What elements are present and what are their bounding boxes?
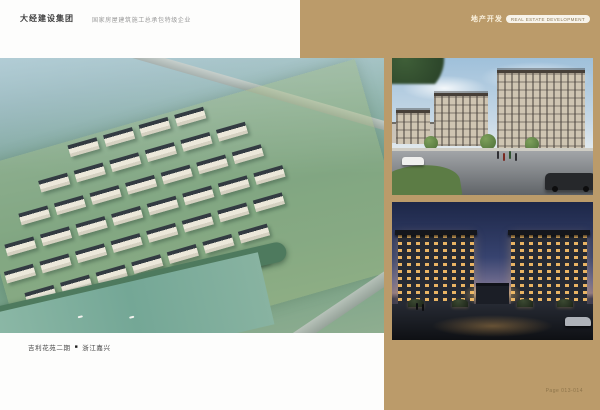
section-label: 地产开发 [471,14,503,24]
project-location: 浙江嘉兴 [82,342,110,352]
apartment-block [216,122,248,142]
apartment-block [125,175,157,195]
parked-car [565,317,591,326]
accent-block-top [300,0,600,60]
boat [78,315,83,318]
apartment-block [147,196,179,216]
section-header: 地产开发 REAL ESTATE DEVELOPMENT [471,14,590,24]
shrub [452,299,468,307]
caption-separator-icon: ■ [75,345,79,350]
project-name: 吉利花苑二期 [28,342,71,352]
pedestrian [503,153,505,161]
apartment-block [145,142,177,162]
company-name: 大经建设集团 [20,13,74,24]
car-wheel [552,186,558,192]
night-roof [508,230,590,235]
apartment-block [238,224,270,244]
apartment-block [180,132,212,152]
apartment-block [109,152,141,172]
apartment-block [38,173,70,193]
brochure-page: 大经建设集团 国家房屋建筑施工总承包特级企业 地产开发 REAL ESTATE … [0,0,600,410]
street-elevation-rendering [392,58,593,195]
entrance-night-rendering [392,202,593,340]
foreground-branch [392,58,454,84]
apartment-block [217,203,249,223]
shrub [517,299,533,307]
apartment-block [253,165,285,185]
street-building-right [497,70,585,148]
apartment-block [139,117,171,137]
entrance-gate [476,283,508,304]
apartment-block [253,192,285,212]
boat [129,316,134,319]
project-caption: 吉利花苑二期 ■ 浙江嘉兴 [28,342,111,352]
apartment-block [111,206,143,226]
apartment-block [196,154,228,174]
pedestrian [509,151,511,159]
apartment-block [67,137,99,157]
apartment-block [90,185,122,205]
apartment-block [218,175,250,195]
white-car [402,157,424,165]
apartment-block [40,226,72,246]
shrub [557,299,573,307]
apartment-block [103,127,135,147]
page-number: Page 013-014 [546,388,583,394]
apartment-block [111,233,143,253]
apartment-block [4,264,36,284]
apartment-block [146,223,178,243]
apartment-block [39,254,71,274]
apartment-block [202,234,234,254]
apartment-block [54,195,86,215]
apartment-block [174,107,206,127]
apartment-block [161,165,193,185]
apartment-block [75,243,107,263]
night-roof [395,230,477,235]
car-wheel [583,186,589,192]
pedestrian-silhouette [416,303,418,310]
apartment-block [182,213,214,233]
apartment-block [4,237,36,257]
apartment-block [232,144,264,164]
aerial-masterplan-rendering [0,58,384,333]
pedestrian [497,151,499,159]
apartment-block [18,205,50,225]
apartment-block [74,163,106,183]
pedestrian-silhouette [422,304,424,311]
company-tagline: 国家房屋建筑施工总承包特级企业 [92,15,191,24]
section-badge: REAL ESTATE DEVELOPMENT [506,15,590,23]
apartment-block [182,186,214,206]
pedestrian [515,153,517,161]
dark-car [545,173,593,190]
ground-glow [432,315,553,337]
apartment-block [76,216,108,236]
